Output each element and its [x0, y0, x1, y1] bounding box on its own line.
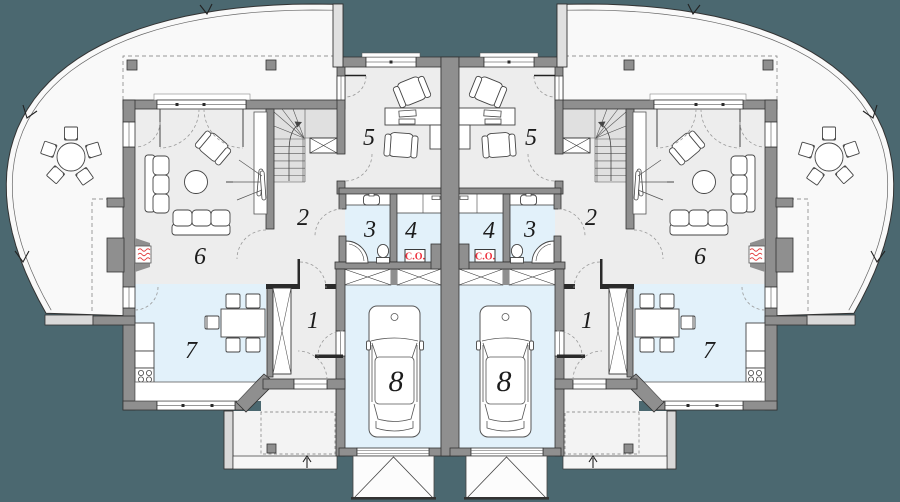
svg-text:C.O.: C.O. — [405, 252, 426, 263]
svg-text:2: 2 — [585, 205, 597, 231]
svg-text:7: 7 — [703, 338, 716, 364]
svg-text:6: 6 — [194, 244, 206, 270]
svg-text:5: 5 — [525, 125, 537, 151]
svg-text:1: 1 — [581, 308, 593, 334]
svg-text:5: 5 — [363, 125, 375, 151]
svg-text:6: 6 — [694, 244, 706, 270]
svg-text:2: 2 — [297, 205, 309, 231]
svg-text:3: 3 — [523, 217, 536, 243]
svg-text:8: 8 — [389, 365, 404, 398]
svg-text:4: 4 — [483, 218, 495, 244]
svg-text:C.O.: C.O. — [475, 252, 496, 263]
svg-text:4: 4 — [405, 218, 417, 244]
svg-text:1: 1 — [307, 308, 319, 334]
svg-text:3: 3 — [363, 217, 376, 243]
svg-text:7: 7 — [185, 338, 198, 364]
svg-text:8: 8 — [497, 365, 512, 398]
